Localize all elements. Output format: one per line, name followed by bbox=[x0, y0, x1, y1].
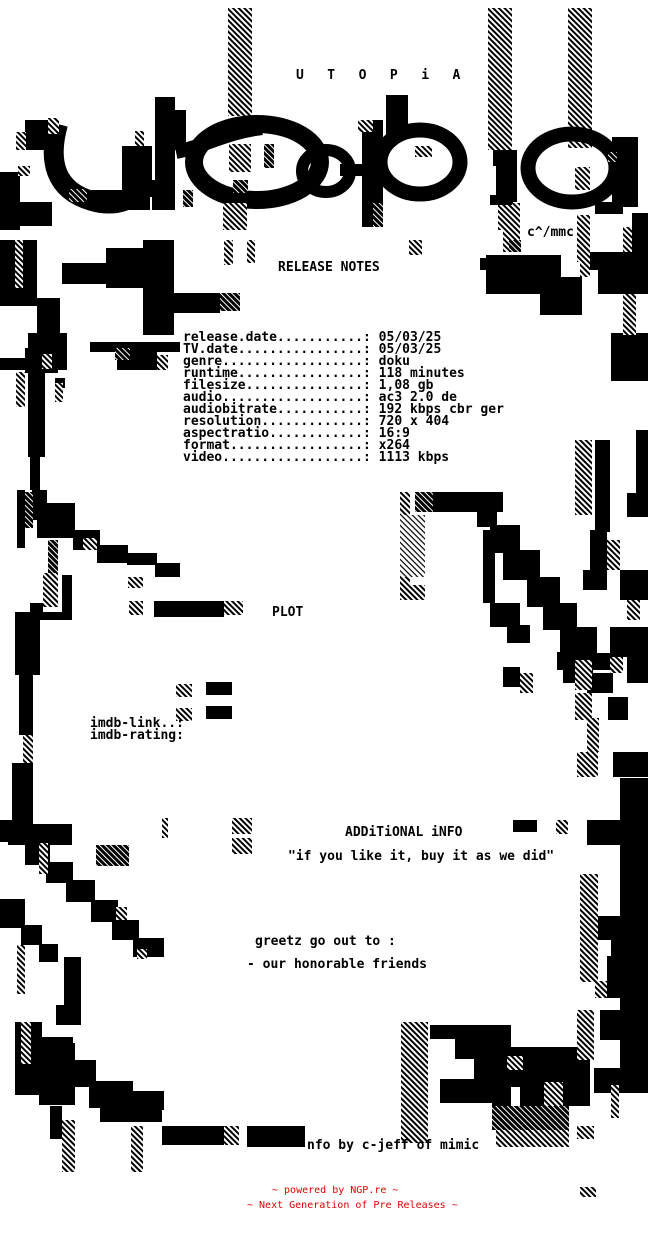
bottom-left-art bbox=[15, 1022, 305, 1172]
tagline-line: ~ Next Generation of Pre Releases ~ bbox=[247, 1198, 458, 1213]
utopia-ascii-logo bbox=[0, 95, 648, 270]
imdb-marks-art bbox=[176, 682, 232, 721]
plot-title: PLOT bbox=[272, 607, 303, 619]
right-border-art bbox=[400, 430, 648, 824]
bottom-right-art bbox=[401, 1010, 648, 1197]
nfo-credit: nfo by c-jeff of mimic bbox=[307, 1140, 479, 1152]
powered-by-line: ~ powered by NGP.re ~ bbox=[272, 1183, 398, 1198]
nfo-document: U T O P i A c^/mmc RELEASE NOTES release… bbox=[0, 0, 648, 1236]
greetz-line: - our honorable friends bbox=[247, 959, 427, 971]
greetz-heading: greetz go out to : bbox=[255, 936, 396, 948]
imdb-rating-label: imdb-rating: bbox=[90, 730, 184, 742]
additional-info-title: ADDiTiONAL iNFO bbox=[345, 827, 462, 839]
buy-it-quote: "if you like it, buy it as we did" bbox=[288, 851, 554, 863]
ascii-art-background bbox=[0, 0, 648, 1236]
group-name-header: U T O P i A bbox=[296, 70, 460, 82]
release-notes-title: RELEASE NOTES bbox=[278, 262, 380, 274]
release-fields: release.date...........: 05/03/25TV.date… bbox=[183, 332, 504, 464]
left-lower-art bbox=[0, 818, 252, 1025]
release-field-row: video..................: 1113 kbps bbox=[183, 452, 504, 464]
ascii-art-credit: c^/mmc bbox=[527, 227, 574, 239]
